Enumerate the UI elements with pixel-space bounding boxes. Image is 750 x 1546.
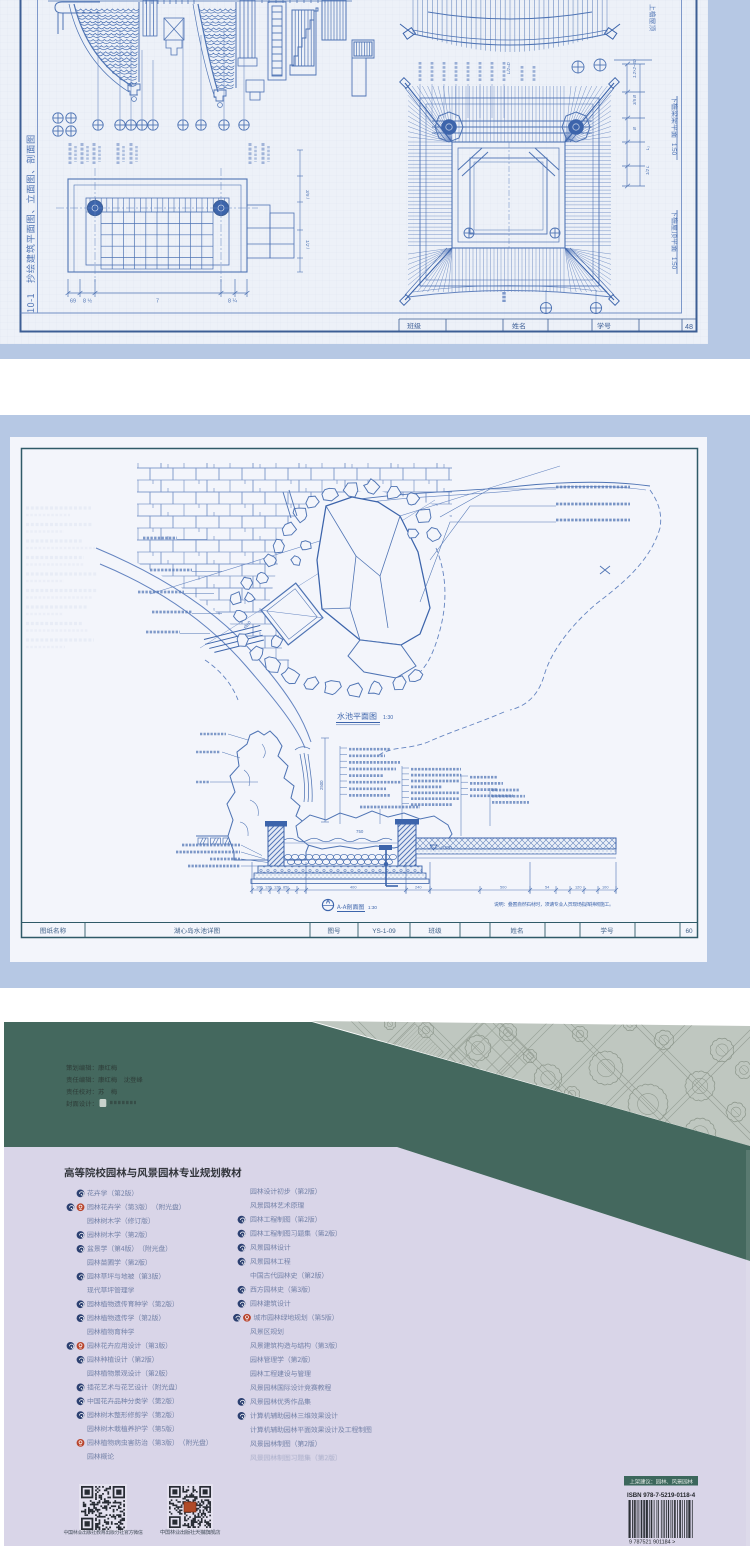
svg-text:1:50: 1:50 [670,143,677,156]
svg-text:500: 500 [500,885,507,890]
svg-text:100: 100 [256,885,263,890]
svg-text:3/5 l: 3/5 l [305,190,310,200]
svg-text:L₁: L₁ [645,146,650,150]
svg-text:7: 7 [156,299,159,305]
svg-text:8 ¼: 8 ¼ [228,299,237,305]
svg-text:750: 750 [356,829,364,834]
svg-text:1.2×2~3D: 1.2×2~3D [632,59,637,78]
svg-text:85: 85 [283,885,287,890]
svg-text:1/2 l: 1/2 l [305,240,310,250]
svg-text:ISBN 978-7-5219-0118-4: ISBN 978-7-5219-0118-4 [627,1492,696,1499]
svg-text:A: A [326,900,331,906]
svg-text:2500: 2500 [319,780,324,790]
svg-text:1:30: 1:30 [368,905,377,910]
svg-text:3/5 B: 3/5 B [632,95,637,105]
svg-text:-0.550: -0.550 [440,845,453,850]
svg-text:240: 240 [415,885,422,890]
svg-text:L/2=D: L/2=D [506,61,511,74]
svg-text:120: 120 [274,885,281,890]
svg-text:100: 100 [602,885,609,890]
svg-text:400: 400 [350,885,357,890]
svg-text:1/2 L: 1/2 L [645,165,650,175]
svg-text:B: B [632,127,637,130]
svg-text:1:30: 1:30 [383,715,393,721]
svg-text:120: 120 [265,885,272,890]
svg-text:120: 120 [575,885,582,890]
svg-text:69: 69 [70,299,76,305]
svg-text:8 ½: 8 ½ [83,298,92,305]
svg-text:48: 48 [685,322,693,331]
svg-text:60: 60 [685,928,693,935]
svg-text:YS-1-09: YS-1-09 [372,928,396,935]
svg-text:9 787521 901184 >: 9 787521 901184 > [629,1540,675,1546]
svg-text:1:50: 1:50 [670,257,677,270]
